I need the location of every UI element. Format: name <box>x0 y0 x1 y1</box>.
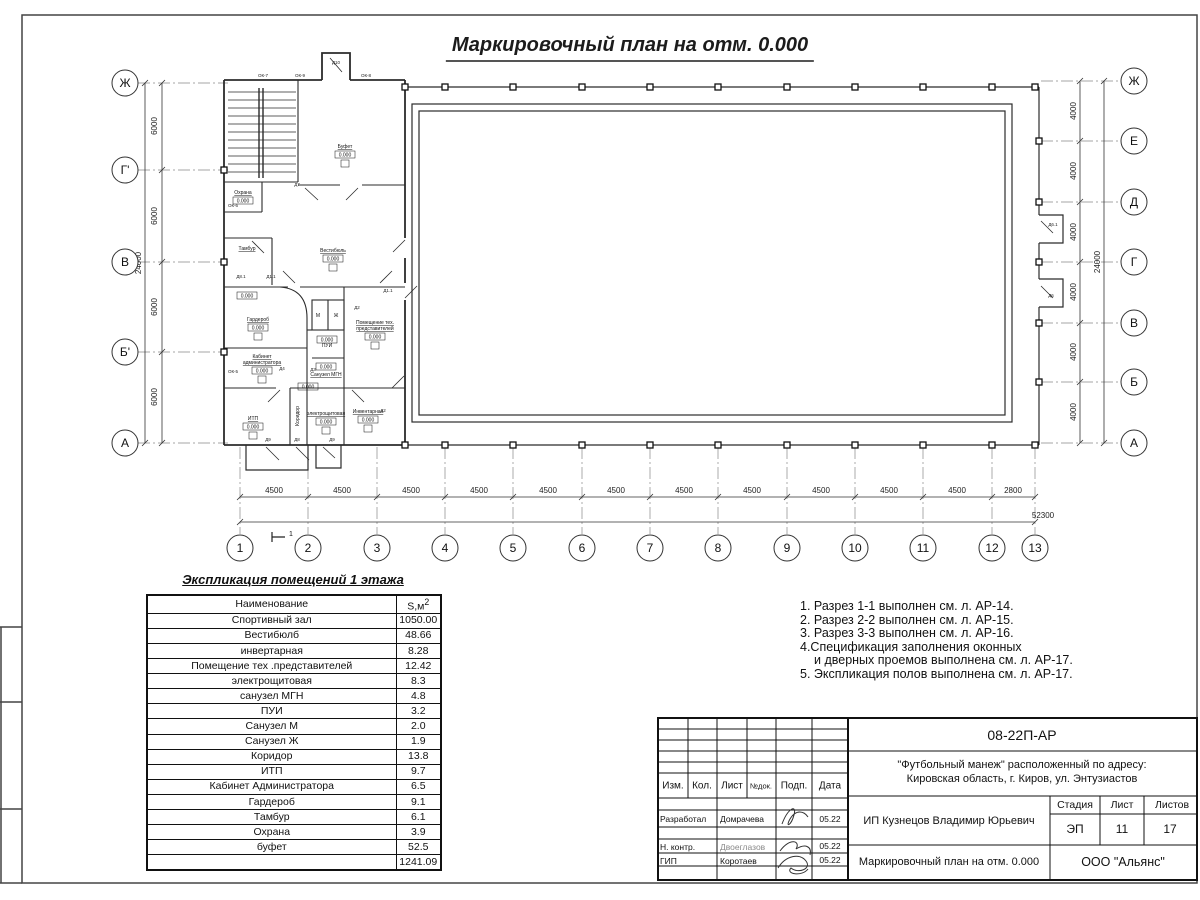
elev-ohrana: 0.000 <box>237 199 250 205</box>
room-area-cell: 3.9 <box>396 825 441 840</box>
table-total-row: 1241.09 <box>147 855 441 870</box>
note-line: 4.Спецификация заполнения оконных <box>800 641 1073 655</box>
room-area-cell: 1.9 <box>396 734 441 749</box>
room-name-cell: Гардероб <box>147 794 396 809</box>
dim-right-4: 4000 <box>1069 283 1078 301</box>
axis-right-7: А <box>1130 436 1138 450</box>
room-name-cell: электрощитовая <box>147 674 396 689</box>
axis-bottom-13: 13 <box>1028 541 1042 555</box>
room-garderob: Гардероб <box>247 317 269 323</box>
room-elektro: электрощитовая <box>307 411 346 417</box>
elev-vestibul: 0.000 <box>327 257 340 263</box>
room-name-cell: санузел МГН <box>147 689 396 704</box>
tag-d9b: Д9 <box>329 437 335 442</box>
dim-right-5: 4000 <box>1069 343 1078 361</box>
axis-left-1: Ж <box>119 76 130 90</box>
note-line: 3. Разрез 3-3 выполнен см. л. АР-16. <box>800 627 1073 641</box>
dim-bottom-1: 4500 <box>265 486 283 495</box>
axis-left-3: В <box>121 255 129 269</box>
col-header-area: S,м2 <box>396 595 441 613</box>
company-name: ООО "Альянс" <box>1081 855 1165 869</box>
elev-garderob: 0.000 <box>252 326 265 332</box>
table-row: ИТП9.7 <box>147 764 441 779</box>
table-row: Гардероб9.1 <box>147 794 441 809</box>
col-header-name: Наименование <box>147 595 396 613</box>
project-address-line2: Кировская область, г. Киров, ул. Энтузиа… <box>907 773 1138 785</box>
date-nkontr: 05.22 <box>819 841 840 851</box>
drawing-title: Маркировочный план на отм. 0.000 <box>446 34 814 62</box>
room-area-cell: 9.1 <box>396 794 441 809</box>
total-empty-cell <box>147 855 396 870</box>
note-line: 2. Разрез 2-2 выполнен см. л. АР-15. <box>800 614 1073 628</box>
elev-koridor: 0.000 <box>302 385 315 391</box>
tag-d6: Д6 <box>1048 293 1054 298</box>
dim-bottom-10: 4500 <box>880 486 898 495</box>
room-area-cell: 52.5 <box>396 840 441 855</box>
sheet-value: 11 <box>1116 822 1128 836</box>
signature-gip <box>778 842 810 874</box>
elev-elektro: 0.000 <box>320 420 333 426</box>
dim-bottom-9: 4500 <box>812 486 830 495</box>
table-row: ПУИ3.2 <box>147 704 441 719</box>
axis-bottom-11: 11 <box>917 541 930 555</box>
col-kol: Кол. <box>692 781 712 792</box>
room-name-cell: Вестибюлб <box>147 628 396 643</box>
elev-inventar: 0.000 <box>362 418 375 424</box>
axis-bottom-3: 3 <box>374 541 381 555</box>
drawing-sheet: 4500 4500 4500 4500 4500 4500 4500 4500 … <box>0 0 1200 900</box>
date-razrabotal: 05.22 <box>819 814 840 824</box>
dim-bottom-4: 4500 <box>470 486 488 495</box>
axis-right-4: Г <box>1131 255 1138 269</box>
project-code: 08-22П-АР <box>987 727 1056 743</box>
table-header-row: Наименование S,м2 <box>147 595 441 613</box>
elev-itp: 0.000 <box>247 425 260 431</box>
room-name-cell: Кабинет Администратора <box>147 779 396 794</box>
table-row: Коридор13.8 <box>147 749 441 764</box>
total-area-cell: 1241.09 <box>396 855 441 870</box>
dim-left-3: 6000 <box>150 298 159 316</box>
dim-bottom-3: 4500 <box>402 486 420 495</box>
elev-su-mgn: 0.000 <box>320 365 333 371</box>
sheets-label: Листов <box>1155 799 1189 811</box>
tag-ok5: ОК-5 <box>228 369 239 374</box>
tag-d11a: Д1.1 <box>266 274 276 279</box>
room-area-cell: 3.2 <box>396 704 441 719</box>
room-name-cell: Спортивный зал <box>147 613 396 628</box>
room-area-cell: 4.8 <box>396 689 441 704</box>
name-dvoeglazov: Двоеглазов <box>720 842 765 852</box>
axis-left-5: А <box>121 436 129 450</box>
tag-ok8: ОК-8 <box>361 73 372 78</box>
dim-left-2: 6000 <box>150 207 159 225</box>
room-area-cell: 13.8 <box>396 749 441 764</box>
axis-right-1: Ж <box>1128 74 1139 88</box>
table-row: инвертарная8.28 <box>147 644 441 659</box>
room-name-cell: Санузел М <box>147 719 396 734</box>
dim-bottom-11: 4500 <box>948 486 966 495</box>
room-area-cell: 9.7 <box>396 764 441 779</box>
dim-bottom-8: 4500 <box>743 486 761 495</box>
tag-ok9: ОК-9 <box>295 73 306 78</box>
tag-d9a: Д9 <box>265 437 271 442</box>
col-list: Лист <box>721 781 743 792</box>
room-name-cell: инвертарная <box>147 644 396 659</box>
note-line: 5. Экспликация полов выполнена см. л. АР… <box>800 668 1073 682</box>
role-gip: ГИП <box>660 856 677 866</box>
room-area-cell: 6.1 <box>396 810 441 825</box>
room-name-cell: ИТП <box>147 764 396 779</box>
area-unit-sup: 2 <box>424 597 429 607</box>
axis-bottom-1: 1 <box>237 541 244 555</box>
table-row: электрощитовая8.3 <box>147 674 441 689</box>
room-bufet: Буфет <box>338 144 353 150</box>
tag-d11b: Д1.1 <box>383 288 393 293</box>
col-data: Дата <box>819 781 841 792</box>
tag-d3: Д3 <box>310 367 316 372</box>
room-name-cell: Санузел Ж <box>147 734 396 749</box>
signature-razrabotal <box>782 809 808 825</box>
dim-right-6: 4000 <box>1069 403 1078 421</box>
elev-pui: 0.000 <box>321 338 334 344</box>
table-row: Кабинет Администратора6.5 <box>147 779 441 794</box>
room-pui: ПУИ <box>322 343 333 349</box>
axis-bottom-2: 2 <box>305 541 312 555</box>
tag-ok7: ОК-7 <box>258 73 269 78</box>
axis-bottom-7: 7 <box>647 541 654 555</box>
note-line: 1. Разрез 1-1 выполнен см. л. АР-14. <box>800 600 1073 614</box>
explication-title: Экспликация помещений 1 этажа <box>182 572 404 587</box>
table-row: Спортивный зал1050.00 <box>147 613 441 628</box>
tag-d10: Д10 <box>332 60 341 65</box>
axis-right-5: В <box>1130 316 1138 330</box>
axis-left-4: Б' <box>120 345 130 359</box>
role-razrabotal: Разработал <box>660 814 706 824</box>
building-walls <box>224 53 1063 470</box>
elev-tambur: 0.000 <box>241 294 254 300</box>
tag-d7: Д7 <box>294 182 300 187</box>
room-area-cell: 12.42 <box>396 659 441 674</box>
dim-left-1: 6000 <box>150 117 159 135</box>
col-izm: Изм. <box>662 781 683 792</box>
tag-d4: Д4 <box>279 366 285 371</box>
room-area-cell: 8.28 <box>396 644 441 659</box>
axis-left-2: Г' <box>121 163 130 177</box>
dim-bottom-6: 4500 <box>607 486 625 495</box>
dim-right-1: 4000 <box>1069 102 1078 120</box>
room-name-cell: Тамбур <box>147 810 396 825</box>
project-address-line1: "Футбольный манеж" расположенный по адре… <box>897 759 1146 771</box>
notes-list: 1. Разрез 1-1 выполнен см. л. АР-14. 2. … <box>800 600 1073 682</box>
room-inventar: Инвентарная <box>353 409 384 415</box>
stage-label: Стадия <box>1057 799 1093 811</box>
table-row: буфет52.5 <box>147 840 441 855</box>
dim-bottom-5: 4500 <box>539 486 557 495</box>
tag-ok6: ОК-6 <box>228 203 239 208</box>
elev-pomteh: 0.000 <box>369 335 382 341</box>
dim-bottom-7: 4500 <box>675 486 693 495</box>
col-ndok: №док. <box>750 782 772 791</box>
room-area-cell: 2.0 <box>396 719 441 734</box>
table-row: Помещение тех .представителей12.42 <box>147 659 441 674</box>
axis-labels: Ж Г' В Б' А Ж Е Д Г В Б А 1 2 3 4 5 6 7 … <box>119 74 1139 555</box>
axis-right-2: Е <box>1130 134 1138 148</box>
room-su-zh: Ж <box>334 313 339 319</box>
sheet-label: Лист <box>1111 799 1134 811</box>
dim-right-3: 4000 <box>1069 223 1078 241</box>
axis-bottom-4: 4 <box>442 541 449 555</box>
name-domracheva: Домрачева <box>720 814 764 824</box>
table-row: Вестибюлб48.66 <box>147 628 441 643</box>
room-su-m: М <box>316 313 320 319</box>
dim-total-right: 24000 <box>1093 250 1102 273</box>
name-korotaev: Коротаев <box>720 856 757 866</box>
room-kabinet-line2: администратора <box>243 360 282 366</box>
area-unit: S,м <box>407 600 424 612</box>
room-koridor: Коридор <box>295 406 301 426</box>
table-row: Тамбур6.1 <box>147 810 441 825</box>
room-itp: ИТП <box>248 416 259 422</box>
room-pomteh-line2: представителей <box>356 325 394 332</box>
table-row: Санузел Ж1.9 <box>147 734 441 749</box>
staircase <box>228 88 296 178</box>
axis-bottom-5: 5 <box>510 541 517 555</box>
date-gip: 05.22 <box>819 855 840 865</box>
col-podp: Подп. <box>781 781 808 792</box>
tag-d81: Д8.1 <box>236 274 246 279</box>
room-area-cell: 8.3 <box>396 674 441 689</box>
dim-left-4: 6000 <box>150 388 159 406</box>
axis-right-3: Д <box>1130 195 1138 209</box>
dim-total-bottom: 52300 <box>1032 511 1055 520</box>
axis-bottom-8: 8 <box>715 541 722 555</box>
sports-field-border <box>412 104 1012 422</box>
room-vestibul: Вестибюль <box>320 248 346 254</box>
elev-bufet: 0.000 <box>339 153 352 159</box>
client-name: ИП Кузнецов Владимир Юрьевич <box>863 815 1034 827</box>
dimension-lines <box>142 78 1107 525</box>
stage-value: ЭП <box>1066 822 1083 836</box>
table-row: Охрана3.9 <box>147 825 441 840</box>
room-ohrana: Охрана <box>234 190 252 196</box>
opening-tags: ОК-7 ОК-9 Д10 ОК-8 ОК-6 ОК-5 Д7 Д8.1 Д1.… <box>228 60 1058 442</box>
drawing-name: Маркировочный план на отм. 0.000 <box>859 856 1039 868</box>
room-name-cell: буфет <box>147 840 396 855</box>
axis-bottom-9: 9 <box>784 541 791 555</box>
door-leaves <box>252 58 1053 460</box>
tag-d2a: Д2 <box>354 305 360 310</box>
axis-grid-lines <box>138 81 1121 534</box>
room-tambur: Тамбур <box>239 246 256 252</box>
dim-bottom-12: 2800 <box>1004 486 1022 495</box>
table-row: санузел МГН4.8 <box>147 689 441 704</box>
room-labels: Буфет 0.000 Вестибюль 0.000 Тамбур 0.000… <box>233 144 394 439</box>
sheets-value: 17 <box>1163 822 1176 836</box>
note-line: и дверных проемов выполнена см. л. АР-17… <box>800 654 1073 668</box>
axis-bottom-12: 12 <box>985 541 999 555</box>
table-row: Санузел М2.0 <box>147 719 441 734</box>
signatures <box>778 809 810 874</box>
explication-table: Наименование S,м2 Спортивный зал1050.00 … <box>146 594 442 871</box>
room-name-cell: Помещение тех .представителей <box>147 659 396 674</box>
room-name-cell: Охрана <box>147 825 396 840</box>
section-mark-label: 1 <box>289 531 293 538</box>
section-mark: 1 <box>272 531 293 542</box>
tag-d2b: Д2 <box>380 408 386 413</box>
room-area-cell: 48.66 <box>396 628 441 643</box>
room-area-cell: 6.5 <box>396 779 441 794</box>
room-name-cell: ПУИ <box>147 704 396 719</box>
tag-d61: Д6.1 <box>1048 222 1058 227</box>
room-su-mgn: Санузел МГН <box>310 372 342 378</box>
tag-d8: Д8 <box>294 437 300 442</box>
axis-right-6: Б <box>1130 375 1138 389</box>
room-name-cell: Коридор <box>147 749 396 764</box>
axis-bottom-6: 6 <box>579 541 586 555</box>
dim-bottom-2: 4500 <box>333 486 351 495</box>
axis-bottom-10: 10 <box>848 541 862 555</box>
room-area-cell: 1050.00 <box>396 613 441 628</box>
role-nkontr: Н. контр. <box>660 842 695 852</box>
dim-right-2: 4000 <box>1069 162 1078 180</box>
elev-kabinet: 0.000 <box>256 369 269 375</box>
